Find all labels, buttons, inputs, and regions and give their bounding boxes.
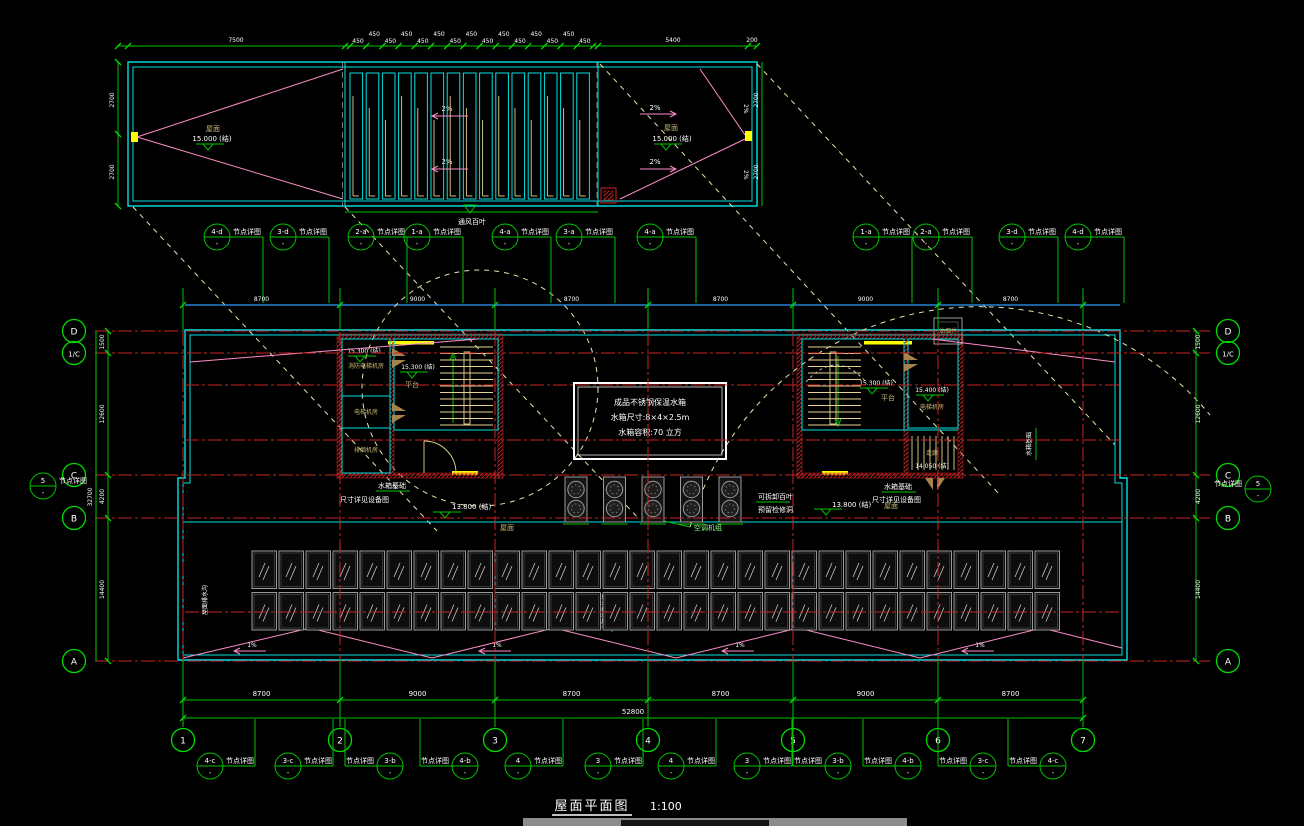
ac-fan [722,500,738,516]
detail-note: 节点详图 [585,227,613,236]
dim-text: 8700 [1003,296,1018,303]
detail-note: 节点详图 [942,227,970,236]
detail-note: 节点详图 [433,227,461,236]
dim-text: 2700 [109,164,116,179]
grid-bubble-label: 7 [1080,737,1086,747]
grid-bubble-label: B [71,515,77,525]
solar-panel [522,551,547,589]
grid-bubble-label: 2 [337,737,343,747]
detail-callout-sheet: - [517,769,520,777]
note-text: 屋面排水沟 [201,585,209,615]
solar-panel [306,593,331,631]
detail-callout-label: 4-b [902,757,914,765]
dim-text: 450 [579,38,591,45]
solar-panel [711,593,736,631]
solar-panel [927,593,952,631]
dim-text: 450 [482,38,494,45]
louver-strip [431,73,444,199]
solar-panel [738,551,763,589]
detail-note: 节点详图 [233,227,261,236]
detail-callout-sheet: - [670,769,673,777]
solar-panel [792,593,817,631]
roof-label: 屋面 [500,524,514,532]
roof-label: 屋面 [884,502,898,510]
solar-panel [657,551,682,589]
slope-label: 2% [742,170,749,180]
ac-fan [645,500,661,516]
solar-panel [360,551,385,589]
upper-generated: 7500540020045045045045045045045045045045… [115,31,760,199]
detail-note: 节点详图 [299,227,327,236]
louver-strip [415,73,428,199]
detail-callout-label: 4-b [459,757,471,765]
slope-label: 2% [742,104,749,114]
louver-strip [561,73,574,199]
detail-note: 节点详图 [226,756,254,765]
detail-callout-sheet: - [216,240,219,248]
dim-text: 450 [368,31,380,38]
detail-note: 节点详图 [939,756,967,765]
detail-callout-sheet: - [597,769,600,777]
elevation-label: 13.800 (结) [452,502,491,511]
dim-text: 450 [563,31,575,38]
room-label: 平台 [881,393,895,402]
dim-text: 450 [530,31,542,38]
slope-label: 1% [492,642,502,649]
detail-callout-label: 4-a [499,228,510,236]
detail-callout-sheet: - [1011,240,1014,248]
dim-text: 450 [547,38,559,45]
elevation-label: 15.400 (结) [915,386,949,394]
detail-callout-sheet: - [1257,492,1260,500]
detail-callout-sheet: - [287,769,290,777]
detail-callout-sheet: - [568,240,571,248]
tank-note: 成品不锈钢保温水箱 [614,397,686,407]
solar-panel [387,551,412,589]
note-text: 水箱基础 [378,481,406,490]
solar-panel [981,551,1006,589]
grid-bubble-label: A [1225,658,1232,668]
solar-panel [576,551,601,589]
dim-text: 4200 [1195,489,1202,504]
detail-callout-sheet: - [282,240,285,248]
detail-callout-sheet: - [907,769,910,777]
solar-panel [468,593,493,631]
note-text: 尺寸详见设备图 [340,495,389,504]
solar-panel [603,551,628,589]
detail-callout-sheet: - [1077,240,1080,248]
room-label: 消防电梯机房 [348,362,384,370]
solar-panel [441,551,466,589]
solar-panel [495,551,520,589]
detail-callout-label: 1-a [860,228,871,236]
detail-callout-sheet: - [504,240,507,248]
dim-text: 8700 [563,690,581,698]
solar-panel [792,551,817,589]
elevation-label: 15.300 (结) [401,363,435,371]
solar-panel [441,593,466,631]
dim-text: 2700 [753,92,760,107]
grid-bubble-label: A [71,658,78,668]
solar-panel [252,551,277,589]
tank-note: 水箱尺寸:8×4×2.5m [611,412,690,422]
detail-callout-sheet: - [360,240,363,248]
detail-callout-sheet: - [837,769,840,777]
detail-note: 节点详图 [794,756,822,765]
grid-bubble-label: D [1225,328,1232,338]
detail-note: 节点详图 [864,756,892,765]
water-tank: 成品不锈钢保温水箱 水箱尺寸:8×4×2.5m 水箱容积:70 立方 水箱基础 [574,383,1036,460]
dim-text: 14400 [1195,580,1202,599]
solar-panel [657,593,682,631]
dim-total: 52800 [622,708,644,716]
solar-panel [900,593,925,631]
elevation-label: 15.000 (结) [652,134,691,143]
dim-text: 450 [466,31,478,38]
upper-block: 屋面 15.000 (结) 2% 2% 屋面 15.000 (结) 2% 2% … [109,31,762,226]
detail-note: 节点详图 [614,756,642,765]
louver-strip [399,73,412,199]
dim-text: 2700 [753,164,760,179]
grid-bubble-label: 1/C [68,351,80,359]
dim-text: 水箱基础 [1025,432,1033,456]
solar-panel [873,593,898,631]
room-label: 电梯机房 [354,408,378,416]
ac-fan [683,481,699,497]
detail-callout-sheet: - [389,769,392,777]
dim-text: 8700 [712,690,730,698]
louver-strip [350,73,363,199]
ac-fan [683,500,699,516]
solar-panel [495,593,520,631]
room-label: 电梯机房 [920,403,944,411]
detail-callout-label: 3-c [283,757,294,765]
solar-panel [846,593,871,631]
solar-panel [846,551,871,589]
drawing-scale: 1:100 [650,800,682,813]
solar-panel [765,593,790,631]
dim-text: 9000 [410,296,425,303]
room-label: 排烟机房 [354,446,378,454]
elevation-label: 15.000 (结) [192,134,231,143]
detail-callout-label: 5 [1256,480,1260,488]
louver-strip [544,73,557,199]
dim-text: 12600 [1195,404,1202,423]
elevation-label: 14.050 (结) [915,462,949,470]
solar-panel [900,551,925,589]
detail-callout-label: 4 [669,757,674,765]
solar-panel [738,593,763,631]
dim-text: 14400 [99,580,106,599]
detail-callout-sheet: - [925,240,928,248]
solar-panel [1008,551,1033,589]
solar-panel [279,551,304,589]
solar-panel [333,593,358,631]
solar-panel [549,551,574,589]
dim-text: 2700 [109,92,116,107]
grid-bubble-label: 1 [180,737,186,747]
note-text: 预留检修洞 [758,505,793,514]
solar-panel [873,551,898,589]
dim-text: 4200 [99,489,106,504]
main-plan: 15.300 (结) 消防电梯机房 电梯机房 排烟机房 15.300 (结) 平… [178,270,1210,660]
solar-panel [819,551,844,589]
louver-strip [528,73,541,199]
detail-callout-label: 3 [745,757,749,765]
solar-panel [630,551,655,589]
dim-text: 450 [433,31,445,38]
detail-callout-sheet: - [649,240,652,248]
solar-panel [819,593,844,631]
drawing-title: 屋面平面图 [554,799,629,814]
dim-text: 450 [401,31,413,38]
solar-panel [765,551,790,589]
detail-callout-label: 4-d [1072,228,1083,236]
detail-callout-label: 3-d [277,228,288,236]
solar-panel [981,593,1006,631]
dim-text: 8700 [1002,690,1020,698]
detail-callout-label: 3-b [832,757,844,765]
detail-callout-sheet: - [464,769,467,777]
detail-callout-label: 4-d [211,228,222,236]
detail-note: 节点详图 [377,227,405,236]
dim-text: 450 [498,31,510,38]
grid-bubble-label: D [71,328,78,338]
louver-strip [577,73,590,199]
note-text: 可拆卸百叶 [758,492,793,501]
grid-bubble-label: 3 [492,737,498,747]
dim-text: 200 [746,37,758,44]
title-block: 屋面平面图 1:100 [523,799,907,826]
detail-callout-label: 2-a [355,228,366,236]
vent-note: 通风百叶 [458,217,486,226]
louver-strip [480,73,493,199]
solar-panel [684,551,709,589]
dim-text: 450 [449,38,461,45]
louver-strip [366,73,379,199]
dim-text: 8700 [564,296,579,303]
solar-panel [414,593,439,631]
dim-text: 7500 [228,37,243,44]
dim-text: 5400 [665,37,680,44]
solar-panel [1035,593,1060,631]
solar-panel [1008,593,1033,631]
detail-callout-sheet: - [209,769,212,777]
grid-bubble-label: B [1225,515,1231,525]
cad-viewport[interactable]: 屋面 15.000 (结) 2% 2% 屋面 15.000 (结) 2% 2% … [0,0,1304,826]
louver-strip [447,73,460,199]
dim-text: 9000 [857,690,875,698]
tank-note: 水箱容积:70 立方 [618,427,681,437]
solar-panel [927,551,952,589]
solar-panel [279,593,304,631]
solar-panel [684,593,709,631]
dim-text: 450 [385,38,397,45]
detail-note: 节点详图 [1214,479,1242,488]
solar-panel [711,551,736,589]
ac-fan [722,481,738,497]
plan-generated: 1%1%1%1% [185,347,1120,654]
dim-text: 8700 [254,296,269,303]
detail-note: 节点详图 [1094,227,1122,236]
solar-panel [954,551,979,589]
detail-note: 节点详图 [421,756,449,765]
detail-callout-label: 2-a [920,228,931,236]
detail-note: 节点详图 [304,756,332,765]
detail-callout-label: 3-d [1006,228,1017,236]
roof-label: 屋面 [664,124,678,132]
ac-fan [645,481,661,497]
detail-callout-label: 3-c [978,757,989,765]
detail-note: 节点详图 [534,756,562,765]
detail-callout-sheet: - [746,769,749,777]
detail-callout-label: 4-c [1048,757,1059,765]
detail-callout-label: 4-a [644,228,655,236]
detail-callout-label: 3-a [563,228,574,236]
solar-panel [954,593,979,631]
detail-callout-label: 5 [41,477,45,485]
detail-callout-sheet: - [982,769,985,777]
solar-panel [549,593,574,631]
detail-callout-label: 3 [596,757,600,765]
dim-text: 8700 [713,296,728,303]
dim-text: 450 [514,38,526,45]
dim-text: 12600 [99,404,106,423]
solar-panel [306,551,331,589]
detail-callout-sheet: - [865,240,868,248]
detail-note: 节点详图 [687,756,715,765]
dim-text: 450 [352,38,364,45]
solar-panel [630,593,655,631]
detail-callout-label: 1-a [411,228,422,236]
dim-total: 32700 [87,487,94,506]
solar-panel [522,593,547,631]
solar-panel [468,551,493,589]
ac-fan [606,500,622,516]
ac-fan [568,500,584,516]
slope-label: 1% [735,642,745,649]
elevation-label: 13.800 (结) [832,500,871,509]
grid-bubble-label: 4 [645,737,651,747]
solar-panel [333,551,358,589]
slope-label: 2% [649,158,660,166]
slope-label: 1% [247,642,257,649]
ac-fan [568,481,584,497]
roof-plan-drawing: 屋面 15.000 (结) 2% 2% 屋面 15.000 (结) 2% 2% … [0,0,1304,826]
detail-note: 节点详图 [666,227,694,236]
detail-callout-sheet: - [1052,769,1055,777]
detail-callout-label: 4 [516,757,521,765]
dim-text: 9000 [858,296,873,303]
detail-note: 节点详图 [346,756,374,765]
solar-panel [387,593,412,631]
louver-strip [382,73,395,199]
slope-label: 1% [975,642,985,649]
detail-note: 节点详图 [1009,756,1037,765]
solar-panel [360,593,385,631]
projection-lines [133,64,1115,531]
slope-label: 2% [649,104,660,112]
solar-panel [576,593,601,631]
detail-callout-sheet: - [42,489,45,497]
solar-panel [603,593,628,631]
elevation-label: 15.300 (结) [859,379,893,387]
title-bar-notch [621,820,769,826]
detail-note: 节点详图 [59,476,87,485]
left-core: 15.300 (结) 消防电梯机房 电梯机房 排烟机房 15.300 (结) 平… [337,334,503,478]
detail-callout-label: 4-c [205,757,216,765]
detail-note: 节点详图 [521,227,549,236]
solar-panel [414,551,439,589]
dim-text: 9000 [409,690,427,698]
detail-callout-label: 3-b [384,757,396,765]
roof-label: 屋面 [206,125,220,133]
louver-strip [512,73,525,199]
note-text: 水箱基础 [884,482,912,491]
grid-bubble-label: 1/C [1222,351,1234,359]
louver-strip [496,73,509,199]
solar-panel [1035,551,1060,589]
dim-text: 1500 [99,334,106,349]
detail-note: 节点详图 [763,756,791,765]
dim-text: 8700 [253,690,271,698]
louver-strip [463,73,476,199]
detail-note: 节点详图 [882,227,910,236]
dim-text: 450 [417,38,429,45]
ac-fan [606,481,622,497]
detail-callout-sheet: - [416,240,419,248]
dim-text: 1500 [1195,334,1202,349]
solar-panel [252,593,277,631]
detail-note: 节点详图 [1028,227,1056,236]
